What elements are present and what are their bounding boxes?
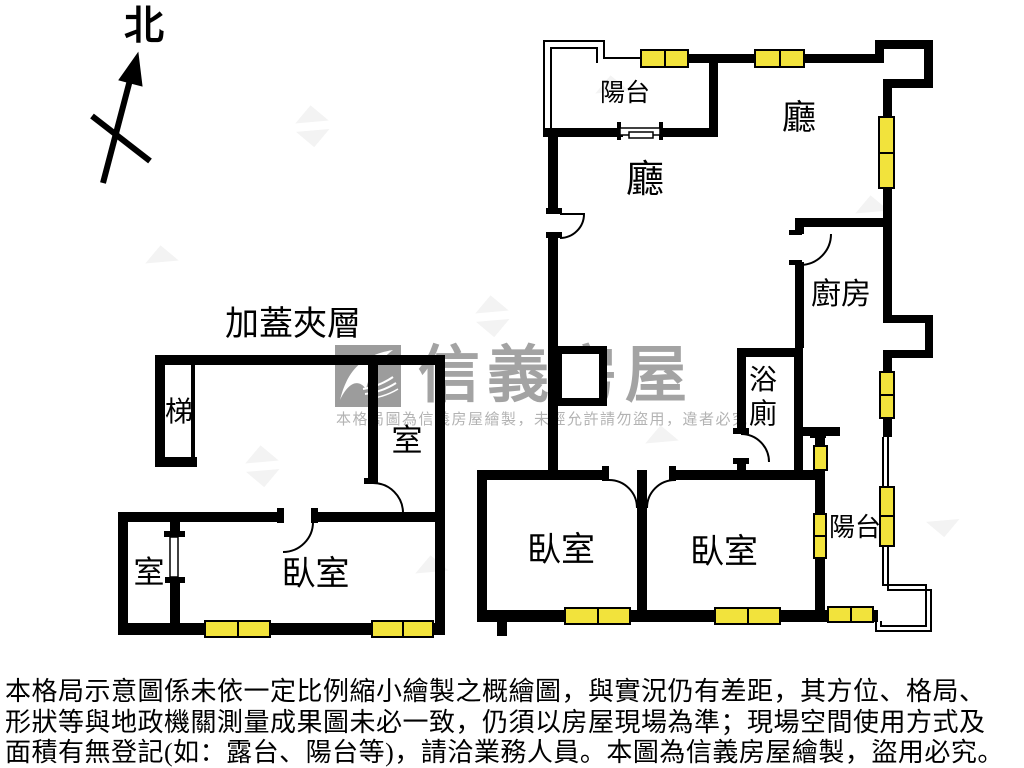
walls-group (118, 40, 933, 636)
floor-plan-page: 信義房屋 本格局圖為信義房屋繪製，未經允許請勿盜用，違者必究 (0, 0, 1024, 768)
floor-plan-drawing (0, 0, 1024, 768)
stair-box-main (558, 350, 603, 402)
north-arrow-icon (92, 53, 150, 183)
disclaimer-line-1: 本格局示意圖係未依一定比例縮小繪製之概繪圖，與實況仍有差距，其方位、格局、 (5, 677, 1021, 708)
disclaimer-line-3: 面積有無登記(如：露台、陽台等)，請洽業務人員。本圖為信義房屋繪製，盜用必究。 (5, 738, 1021, 768)
disclaimer-line-2: 形狀等與地政機關測量成果圖未必一致，仍須以房屋現場為準；現場空間使用方式及 (5, 708, 1021, 739)
disclaimer-text: 本格局示意圖係未依一定比例縮小繪製之概繪圖，與實況仍有差距，其方位、格局、 形狀… (5, 677, 1021, 768)
